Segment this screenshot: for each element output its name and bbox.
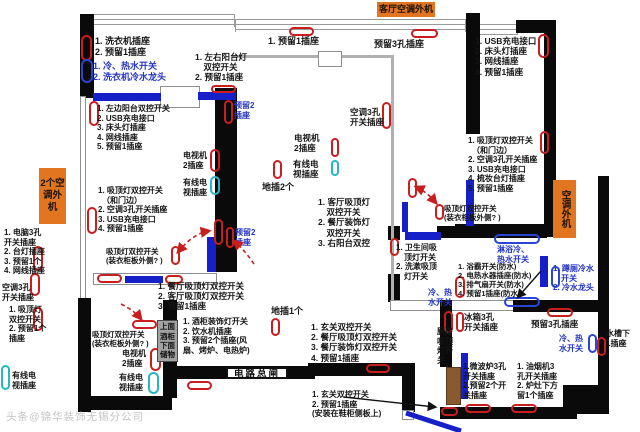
note-kitchen-light-switch: 厨房吸顶灯开关 [437,327,459,365]
socket-marker-washer [81,35,92,61]
note-reserved2-top: 预留2 插座 [234,101,254,120]
wall-segment [90,396,172,410]
cable-marker-study [1,365,10,390]
water-marker-kitchen [588,334,597,353]
note-sink-socket: 水槽下 1插座 [606,329,630,348]
switch-marker-divider-a [97,274,122,283]
note-kitchen-water: 冷、热 水开关 [559,334,583,353]
note-living-ac-socket: 空调3孔 开关插座 [350,107,384,127]
socket-marker-living-tv [331,138,339,157]
socket-marker-floor2 [273,160,282,179]
note-reserved2-mid: 预留2 插座 [235,228,255,247]
wall-segment [80,96,86,300]
socket-marker-bedroom2-b [540,131,549,154]
note-bedroom1-cable: 有线电 视插座 [183,178,207,197]
note-bedroom1-switch-list: 1. 吸顶灯双控开关 （和门边） 2. 空调3孔开关插座 3. USB充电接口 … [98,186,167,234]
entry-door-gap [402,410,414,420]
socket-marker-microwave [465,404,491,413]
note-bedroom3-wardrobe-switch: 吸顶灯双控开关 (装衣柜板外侧? ) [92,330,149,348]
socket-marker-floor1 [271,318,280,336]
note-cabinet-list: 1. 酒柜装饰灯开关 2. 饮水机插座 3. 预留2个插座(风 扇、烤炉、电热炉… [183,317,250,355]
switch-marker-kitchen-entry [441,407,458,416]
socket-marker-bedroom1-tv [210,149,220,172]
note-living-switch-list: 1. 客厅吸顶灯 双控开关 2. 餐厅装饰灯 双控开关 3. 右阳台双控 [318,197,370,248]
bathroom-window-bar [405,232,441,240]
note-study-list: 1. 电脑3孔 开关插座 2. 台灯插座 3. 预留1个 4. 网线插座 [4,228,45,276]
water-marker-shower [494,234,540,244]
note-bedroom2-switch-list: 1. 吸顶灯双控开关 （和门边） 2. 空调3孔开关插座 3. USB充电接口 … [468,136,537,194]
socket-marker-reserved2-top [224,100,233,124]
badge-living-ac-unit: 客厅空调外机 [377,2,435,17]
note-floor-socket-2: 地插2个 [262,182,294,193]
cable-marker-bedroom1 [210,176,220,195]
badge-left-ac-units: 2个空调外机 [39,168,66,224]
wall-segment [598,176,609,388]
socket-marker-bedroom2-a [538,34,549,58]
cabinet-storage-box: 上面酒柜下面储物 [157,320,178,362]
note-balcony-mid: 1. 左右阳台灯 双控开关 2. 预留1插座 [195,52,247,83]
note-washer: 1. 洗衣机插座 2. 预留1插座 [95,36,150,58]
socket-marker-sink [597,337,606,356]
note-floor-socket-1: 地插1个 [271,306,303,317]
note-bedroom1-wardrobe-switch: 吸顶灯双控开关 (装衣柜板外侧? ) [106,247,163,265]
switch-marker-entry-wall [366,364,390,373]
note-bedroom2-wall-list: 1. USB充电接口 2. 床头灯插座 3. 网线插座 4. 预留1插座 [475,36,536,77]
floor-plan-diagram: 1. 洗衣机插座 2. 预留1插座 1. 冷、热水开关 2. 洗衣机冷水龙头 1… [0,0,640,432]
note-toilet-water: 1. 蹲厕冷水 开关 2. 冷水龙头 [553,264,594,293]
wall-segment [390,300,515,311]
note-bedroom2-wardrobe-switch: 吸顶灯双控开关 (装衣柜板外侧? ) [444,204,501,222]
badge-right-ac-unit: 空调外机 [553,180,576,238]
sliding-door-bar [198,92,236,100]
wall-segment [308,363,415,376]
water-marker-toilet-pos [504,297,540,307]
socket-marker-kitchen-reserved [547,308,573,317]
note-washer-water: 1. 冷、热水开关 2. 洗衣机冷水龙头 [93,61,166,83]
note-bath-water: 冷、热 水开关 [428,288,452,307]
wall-segment [563,385,609,414]
note-bedroom1-tv: 电视机 2插座 [183,151,207,170]
note-top-reserved3: 预留3孔插座 [374,39,424,50]
note-living-tv: 电视机 2插座 [294,133,320,153]
socket-marker-hood [511,404,537,413]
note-shower-water: 淋浴冷、 热水开关 [497,245,529,264]
switch-marker-bedroom3-wardrobe [132,320,157,329]
switch-marker-bedroom1-wardrobe [171,246,180,265]
note-bath-device-list: 1. 浴霸开关(防水) 2. 电热水器插座(防水) 3. 排气扇开关(防水) 4… [458,262,531,298]
switch-marker-center-wall-b [226,227,234,248]
wall-segment [440,407,577,419]
note-entry-shoe-cabinet: 1. 玄关双控开关 2. 预留1插座 (安装在鞋柜侧板上) [312,390,381,419]
wall-segment [78,298,91,412]
hall-divider-line [391,55,394,300]
switch-marker-balcony [211,85,236,93]
watermark: 头条@锦华装饰无锡分公司 [6,409,144,424]
water-marker-washer [81,59,93,83]
main-breaker-box: 电路总闸 [226,367,288,379]
bathroom-door-bar [540,256,548,287]
cable-marker-living [331,160,339,176]
balcony-pillar [318,51,342,67]
note-bedroom3-tv: 电视机 2插座 [122,349,146,368]
note-fridge-socket: 冰箱3孔 开关插座 [464,312,498,332]
note-bath-light-switch: 1. 卫生间吸 顶灯开关 2. 洗漱吸顶 灯开关 [396,243,437,281]
note-study-cable: 有线电 视插座 [12,371,36,390]
note-living-cable: 有线电 视插座 [293,159,319,179]
note-study-ac: 空调3孔 开关插座 [2,283,34,302]
switch-marker-bedroom2-wardrobe [435,204,444,220]
bathroom-entry-bar [402,202,408,232]
switch-marker-cabinet-wall [187,381,212,390]
cable-marker-bedroom3 [148,372,159,394]
socket-marker-top-reserved [289,27,314,36]
wood-door [446,367,461,405]
note-hood-list: 1. 油烟机3 孔开关插座 2. 炉灶下方 留1个插座 [517,362,558,400]
note-bedroom3-cable: 有线电 视插座 [119,373,143,392]
note-bedroom1-wall-list: 1. 左边阳台双控开关 2. USB充电接口 3. 床头灯插座 4. 网线插座 … [97,104,170,152]
sliding-door-bar [93,93,161,101]
socket-marker-top-reserved3 [411,29,438,38]
note-entry-switch-list: 1. 玄关双控开关 2. 餐厅吸顶灯双控开关 3. 餐厅装饰灯双控开关 4. 预… [311,322,397,363]
switch-marker-living-wall [408,178,417,198]
note-microwave-list: 1.微波炉3孔 开关插座 2.预留2个开 关插座 [463,362,506,400]
note-study-switch: 1. 吸顶灯 双控开关 2. 预留1个 插座 [9,305,46,343]
wall-segment [402,374,415,412]
window-band-top-left [83,14,235,27]
switch-marker-center-wall-a [214,219,223,245]
note-top-reserved1: 1. 预留1插座 [268,36,319,47]
socket-marker-bedroom1-switch [87,207,97,234]
note-kitchen-reserved3: 预留3孔插座 [531,319,578,329]
balcony-divider-line [232,55,391,58]
note-dining-switch-list: 1. 餐厅吸顶灯双控开关 2. 客厅吸顶灯双控开关 3. 预留1插座 [158,281,244,312]
